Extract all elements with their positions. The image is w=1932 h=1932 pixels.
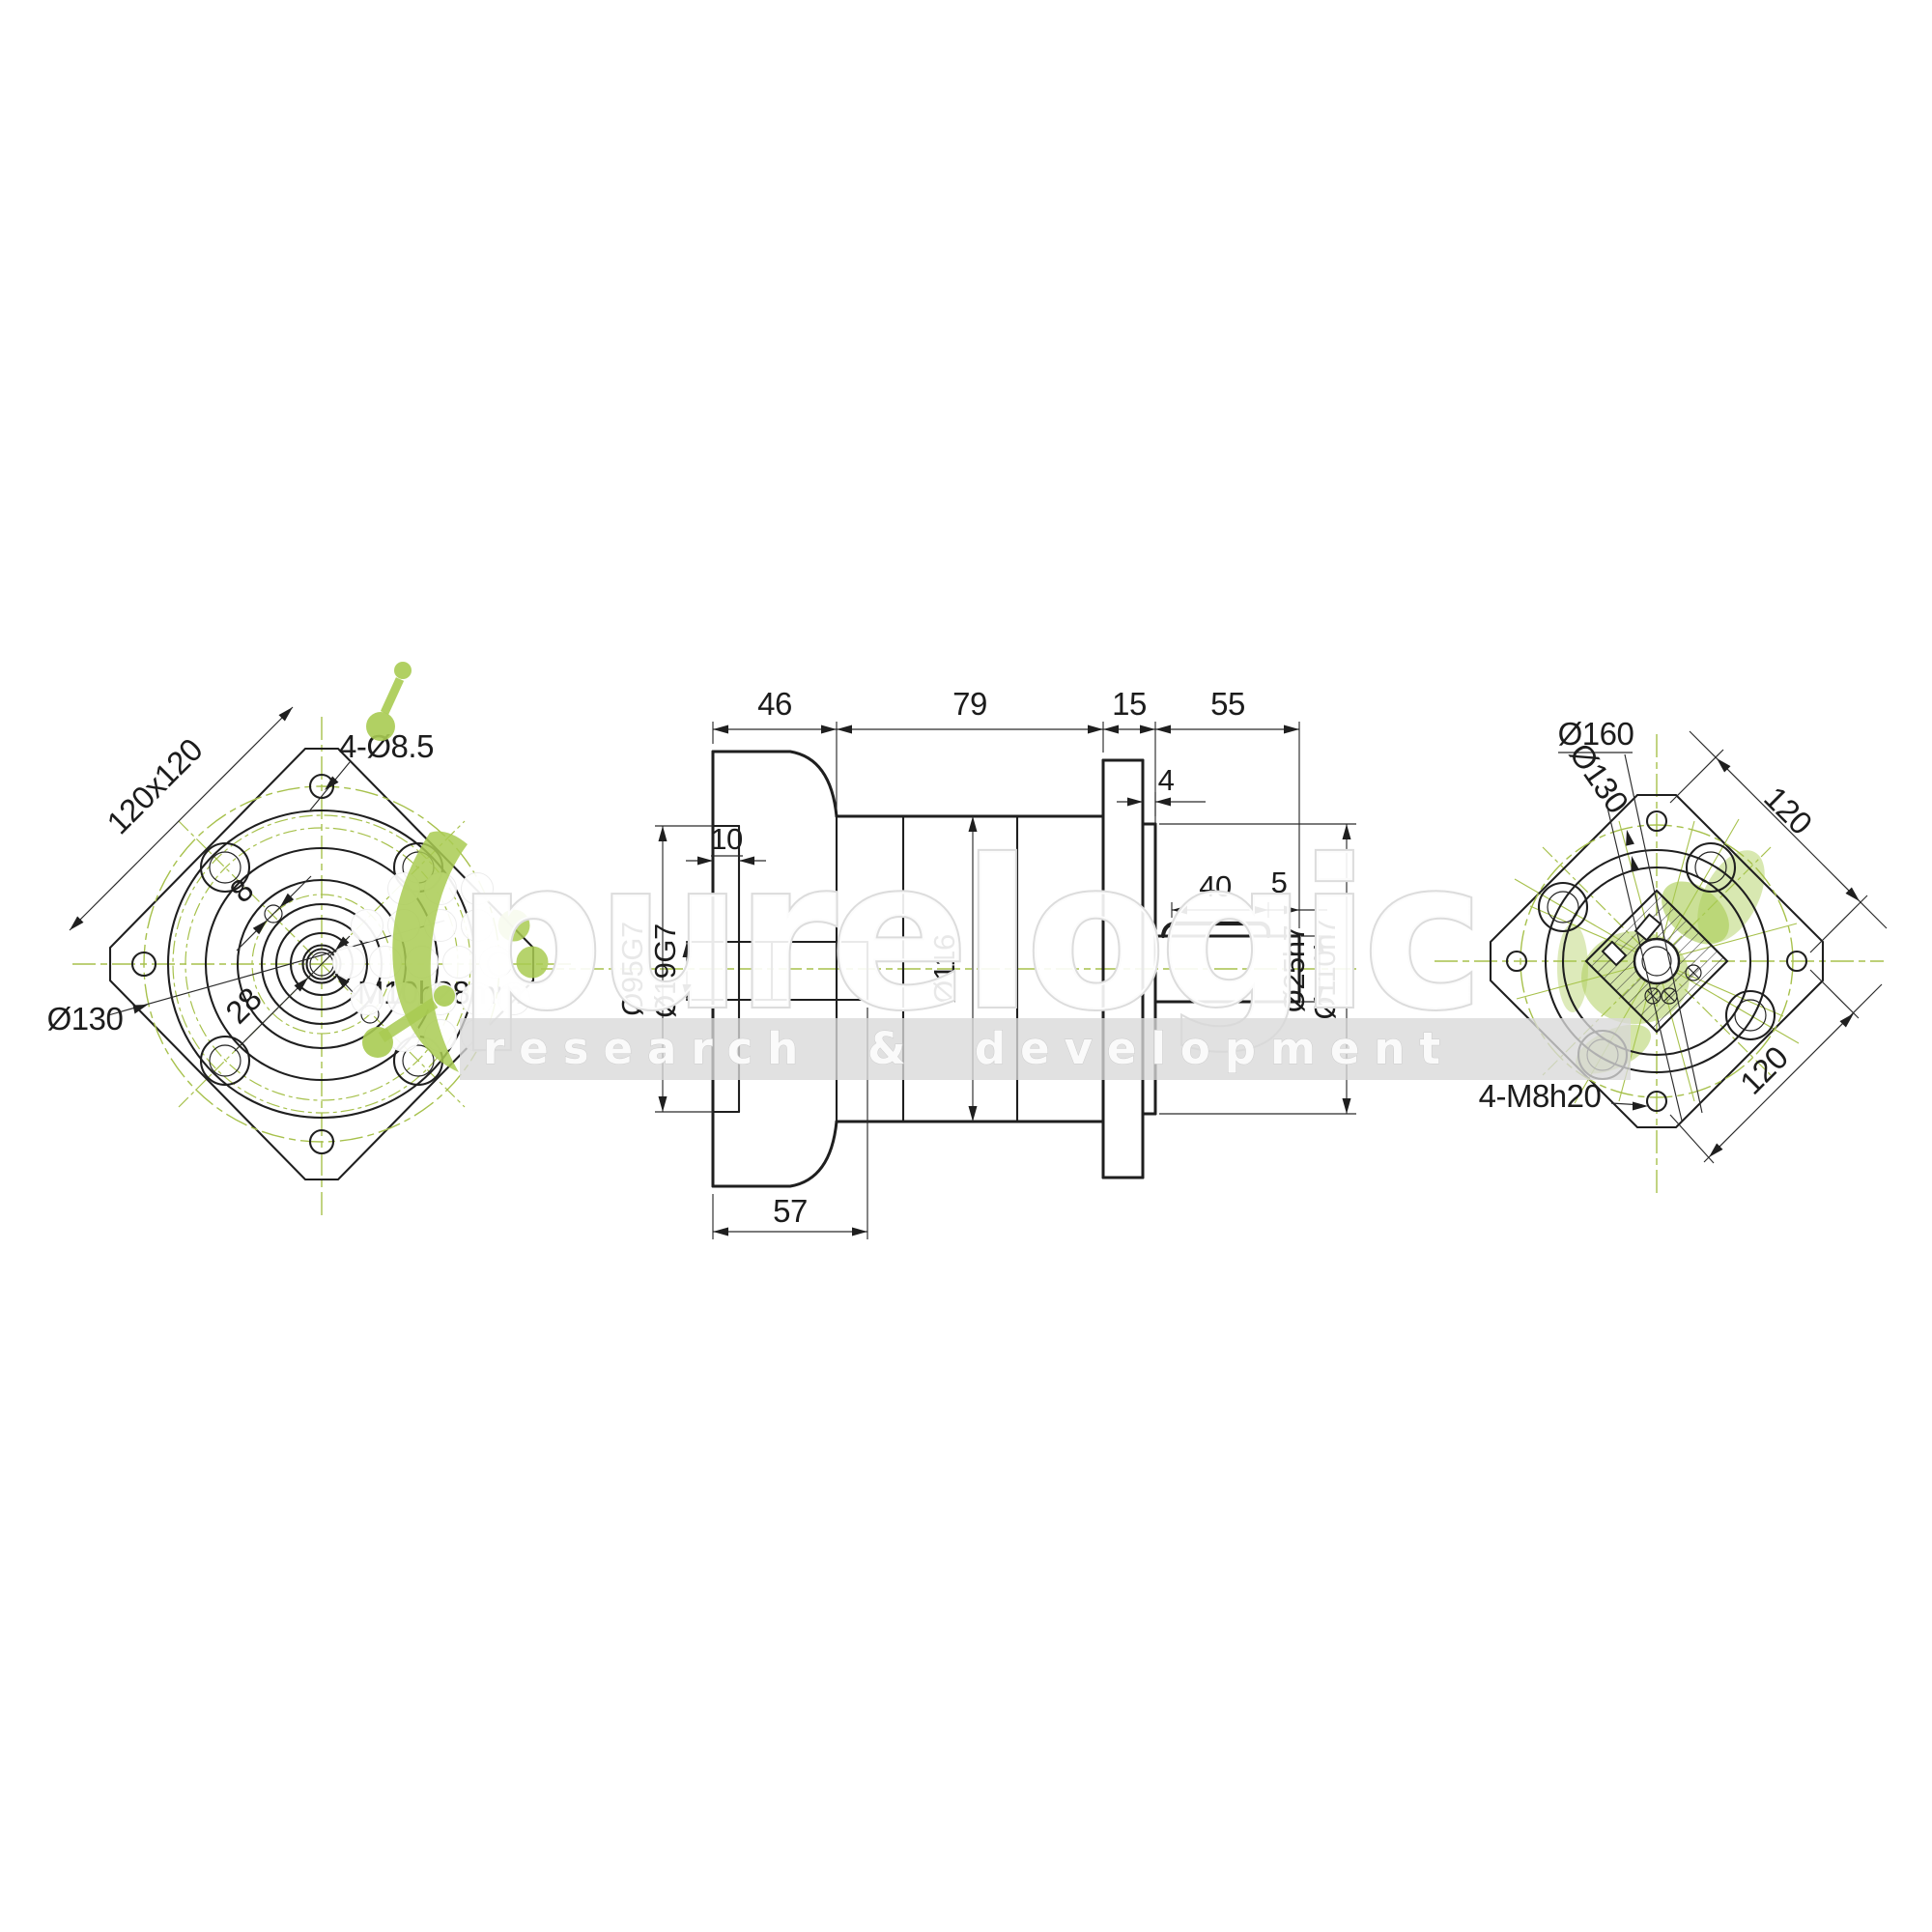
dim-55: 55 [1210, 686, 1245, 722]
dim-4: 4 [1158, 763, 1175, 797]
dim-57: 57 [773, 1193, 808, 1229]
watermark-tagline: research & development [483, 1023, 1455, 1074]
dim-79: 79 [952, 686, 987, 722]
dim-46: 46 [757, 686, 792, 722]
gearbox-drawing: 120x120 4-Ø8.5 Ø130 M10h28mm 28 [0, 0, 1932, 1932]
rear-m8-label: 4-M8h20 [1479, 1078, 1602, 1114]
front-bolt-circle-label: Ø130 [47, 1001, 124, 1037]
dim-15: 15 [1112, 686, 1147, 722]
technical-drawing-page: 120x120 4-Ø8.5 Ø130 M10h28mm 28 [0, 0, 1932, 1932]
